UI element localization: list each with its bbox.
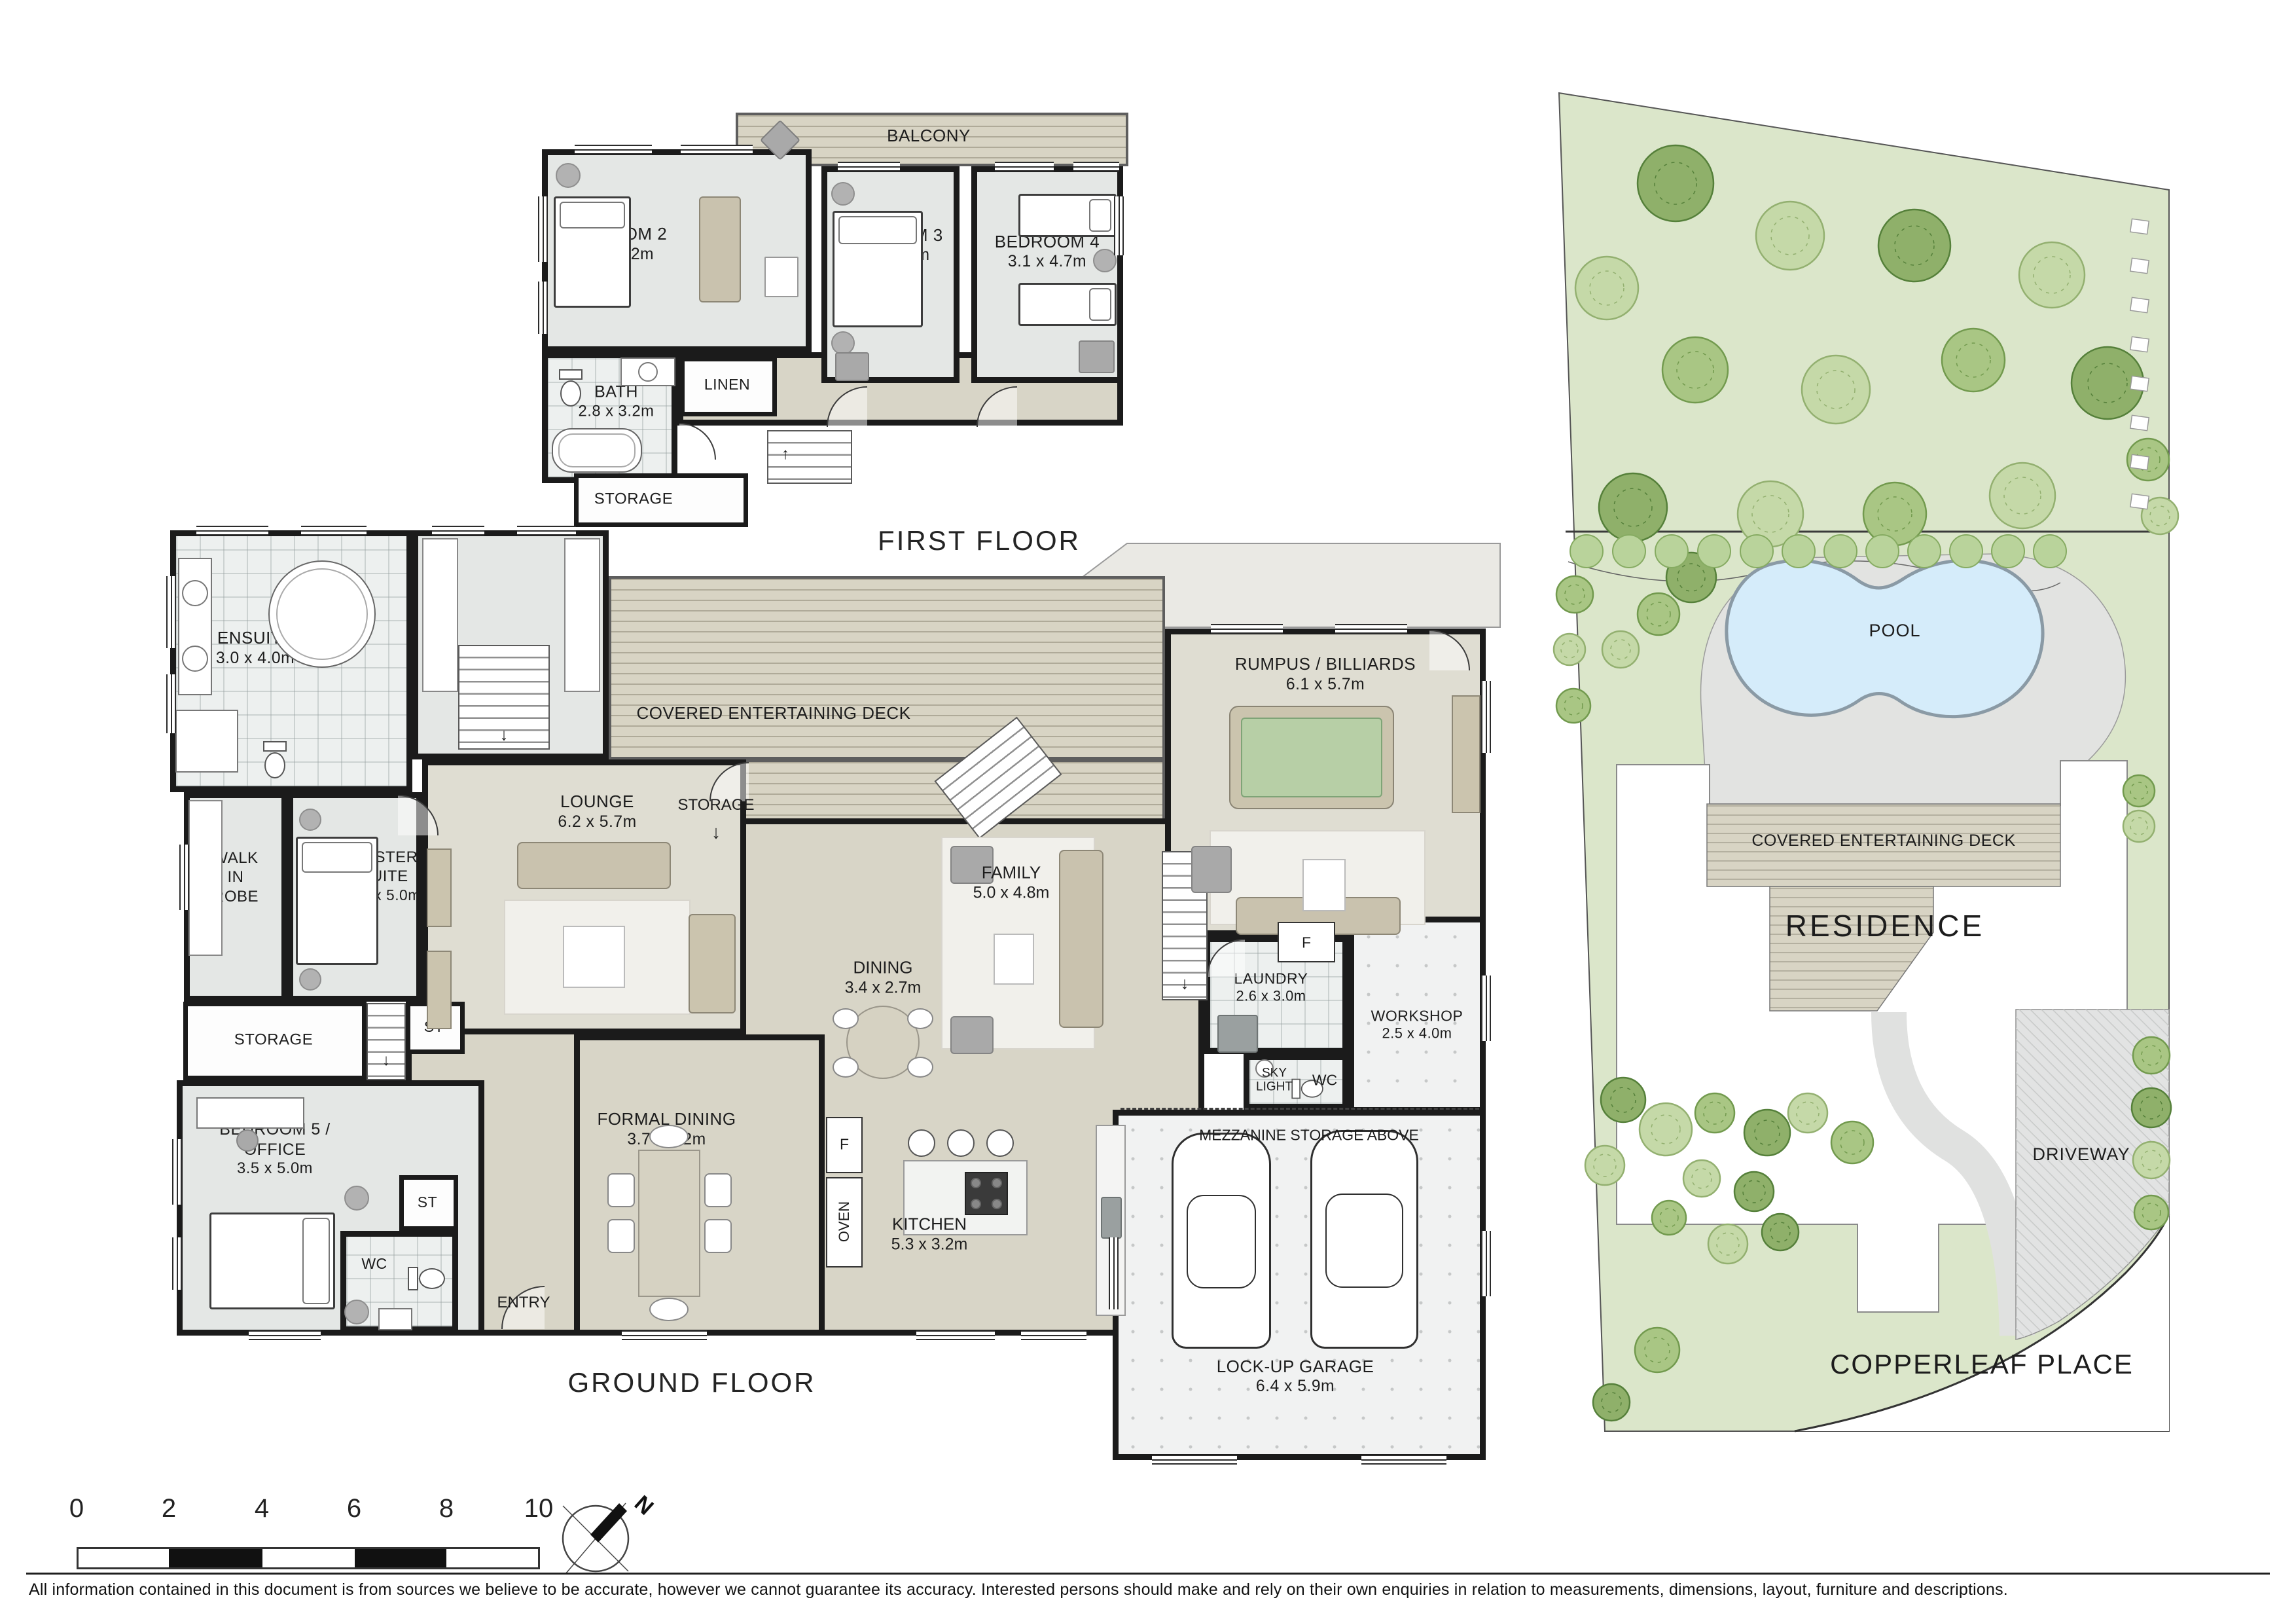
furniture — [1101, 1197, 1122, 1239]
room-storage-gf-label: STORAGE — [234, 1030, 313, 1049]
room-st-2: ST — [399, 1175, 458, 1231]
room-deck-a-label: COVERED ENTERTAINING DECK — [637, 703, 911, 724]
bed — [296, 837, 378, 965]
chair — [833, 1057, 859, 1078]
scale-tick-label: 4 — [255, 1494, 269, 1523]
annotation: SKY — [1262, 1067, 1287, 1081]
annotation: ↓ — [1181, 974, 1189, 993]
furniture-round — [992, 1199, 1002, 1209]
room-laundry-label: LAUNDRY2.6 x 3.0m — [1234, 970, 1308, 1006]
furniture — [1241, 718, 1382, 797]
furniture-round — [831, 331, 855, 355]
chair — [649, 1298, 689, 1321]
toilet-part — [408, 1267, 418, 1290]
furniture-round — [182, 580, 208, 606]
furniture — [994, 934, 1034, 985]
furniture — [835, 352, 869, 381]
room-balcony-label: BALCONY — [887, 126, 971, 147]
furniture — [704, 1173, 732, 1207]
room-ff-storage-label: STORAGE — [594, 489, 673, 508]
furniture — [558, 433, 636, 467]
window — [172, 1237, 182, 1290]
room-st-2-label: ST — [418, 1192, 437, 1211]
furniture — [178, 558, 212, 695]
car — [1172, 1133, 1271, 1349]
toilet — [262, 741, 288, 779]
furniture — [1217, 1015, 1258, 1053]
window — [681, 145, 753, 155]
annotation: ↓ — [500, 725, 509, 744]
bed — [1018, 283, 1117, 326]
room-storage-gf: STORAGE — [183, 1002, 367, 1080]
annotation: 5.0 x 4.8m — [973, 884, 1050, 902]
toilet-part — [264, 752, 285, 778]
furniture — [564, 538, 600, 692]
furniture-round — [556, 163, 581, 188]
scale-bar-segment — [169, 1549, 262, 1567]
furniture-round — [992, 1178, 1002, 1188]
room-linen-label: LINEN — [704, 374, 750, 393]
bed — [554, 196, 631, 308]
annotation: KITCHEN — [892, 1215, 967, 1234]
window — [249, 1330, 321, 1340]
scale-tick-label: 6 — [347, 1494, 361, 1523]
scale-tick-label: 2 — [162, 1494, 176, 1523]
furniture — [196, 1097, 304, 1129]
room-workshop-label: WORKSHOP2.5 x 4.0m — [1371, 1007, 1463, 1043]
car-roof — [1325, 1194, 1403, 1288]
annotation: STORAGE — [678, 797, 755, 814]
annotation: DINING — [853, 958, 913, 977]
room-linen: LINEN — [680, 357, 777, 416]
furniture-round — [182, 646, 208, 672]
furniture-round — [276, 568, 368, 660]
annotation: ENTRY — [497, 1294, 550, 1311]
window — [916, 1330, 995, 1340]
furniture-round — [236, 1129, 259, 1152]
window — [166, 576, 176, 648]
window — [166, 674, 176, 733]
toilet-part — [559, 369, 583, 380]
bed — [833, 211, 923, 327]
window — [1481, 681, 1491, 753]
pillow — [560, 202, 625, 228]
room-bath-label: BATH2.8 x 3.2m — [579, 382, 655, 420]
window — [538, 282, 548, 334]
furniture — [607, 1219, 635, 1253]
floorplan-page: { "texts": { "first_floor": "FIRST FLOOR… — [0, 0, 2296, 1623]
furniture — [638, 1150, 700, 1297]
furniture — [1302, 859, 1346, 911]
chair — [833, 1008, 859, 1029]
scale-bar-segment — [355, 1549, 446, 1567]
furniture — [704, 1219, 732, 1253]
car-roof — [1187, 1195, 1256, 1288]
room-rumpus-label: RUMPUS / BILLIARDS6.1 x 5.7m — [1235, 654, 1416, 695]
door-arc — [679, 423, 716, 460]
room-ff-storage: STORAGE — [574, 473, 748, 527]
chair — [907, 1008, 933, 1029]
room-garage-label: LOCK-UP GARAGE6.4 x 5.9m — [1217, 1357, 1374, 1397]
furniture-round — [971, 1199, 981, 1209]
furniture — [378, 1308, 412, 1330]
furniture-round — [299, 809, 321, 831]
furniture — [422, 538, 458, 692]
pillow — [838, 216, 917, 244]
chair — [907, 1057, 933, 1078]
mezzanine-dash — [1121, 1108, 1479, 1110]
stairs — [767, 430, 852, 484]
room-bedroom-4-label: BEDROOM 43.1 x 4.7m — [995, 232, 1100, 272]
room-deck-a: COVERED ENTERTAINING DECK — [609, 576, 1165, 759]
bed — [1018, 194, 1117, 237]
window — [517, 526, 576, 536]
toilet — [558, 369, 584, 407]
toilet-part — [263, 741, 287, 752]
annotation: F — [1302, 934, 1311, 951]
furniture-round — [344, 1300, 369, 1324]
furniture — [699, 196, 741, 302]
furniture-round — [638, 362, 658, 382]
chair — [649, 1125, 689, 1148]
window — [179, 845, 189, 910]
annotation: ↑ — [781, 446, 789, 463]
furniture — [965, 1172, 1008, 1215]
window — [196, 526, 268, 536]
furniture-round — [299, 968, 321, 991]
window — [622, 1330, 707, 1340]
ground-floor-title: GROUND FLOOR — [567, 1367, 816, 1398]
bed — [209, 1213, 335, 1309]
window — [1481, 1231, 1491, 1296]
divider-rule — [26, 1573, 2270, 1575]
furniture-round — [344, 1186, 369, 1211]
window — [575, 145, 652, 155]
furniture — [563, 926, 625, 988]
annotation: MEZZANINE STORAGE ABOVE — [1199, 1127, 1419, 1143]
furniture — [175, 710, 238, 773]
window — [432, 526, 484, 536]
annotation: ↓ — [711, 823, 721, 843]
window — [172, 1139, 182, 1205]
window — [1021, 1330, 1086, 1340]
disclaimer-text: All information contained in this docume… — [29, 1580, 2008, 1599]
window — [838, 162, 900, 172]
furniture — [689, 914, 736, 1013]
furniture — [1452, 695, 1480, 813]
first-floor-title: FIRST FLOOR — [878, 525, 1081, 556]
furniture — [607, 1173, 635, 1207]
furniture-round — [947, 1129, 975, 1157]
toilet-part — [1291, 1079, 1300, 1099]
room-lounge-label: LOUNGE6.2 x 5.7m — [558, 792, 636, 832]
window — [1481, 976, 1491, 1041]
window — [1114, 196, 1124, 255]
furniture-round — [986, 1129, 1014, 1157]
room-wc-1-label: WC — [361, 1254, 387, 1272]
window — [1073, 162, 1119, 172]
pillow — [1089, 199, 1111, 232]
window — [1335, 624, 1407, 634]
furniture — [517, 842, 671, 889]
furniture — [950, 1016, 994, 1054]
pillow — [302, 842, 372, 873]
floorplan-canvas: FIRST FLOOR GROUND FLOOR BALCONYCOVERED … — [0, 0, 2296, 1623]
furniture-round — [971, 1178, 981, 1188]
furniture-round — [908, 1129, 935, 1157]
window — [1152, 1455, 1237, 1465]
annotation: WC — [1312, 1072, 1337, 1088]
annotation: LIGHT — [1256, 1081, 1293, 1095]
toilet — [408, 1266, 446, 1292]
window — [1361, 1455, 1446, 1465]
window — [1109, 1237, 1119, 1309]
annotation: OVEN — [836, 1201, 852, 1242]
furniture-round — [1093, 249, 1117, 272]
furniture — [1191, 846, 1232, 893]
scale-tick-label: 10 — [524, 1494, 554, 1523]
furniture — [1079, 340, 1115, 373]
window — [301, 526, 367, 536]
window — [1211, 624, 1283, 634]
car — [1310, 1130, 1418, 1349]
annotation: 5.3 x 3.2m — [891, 1235, 968, 1254]
room-garage: LOCK-UP GARAGE6.4 x 5.9m — [1113, 1110, 1486, 1460]
annotation: F — [840, 1136, 849, 1152]
furniture — [427, 848, 452, 927]
scale-tick-label: 8 — [439, 1494, 454, 1523]
toilet-part — [560, 380, 581, 407]
scale-tick-label: 0 — [69, 1494, 84, 1523]
pillow — [302, 1218, 330, 1304]
window — [538, 196, 548, 262]
annotation: 3.4 x 2.7m — [845, 979, 922, 997]
scale-bar — [77, 1547, 540, 1569]
furniture — [188, 800, 223, 956]
room-workshop: WORKSHOP2.5 x 4.0m — [1348, 917, 1486, 1113]
window — [995, 162, 1054, 172]
annotation: ↓ — [382, 1052, 390, 1069]
furniture — [427, 951, 452, 1029]
furniture-round — [831, 182, 855, 206]
toilet-part — [419, 1268, 445, 1289]
furniture — [764, 257, 798, 297]
annotation: FAMILY — [982, 864, 1041, 883]
furniture — [1059, 850, 1103, 1028]
pillow — [1089, 288, 1111, 321]
